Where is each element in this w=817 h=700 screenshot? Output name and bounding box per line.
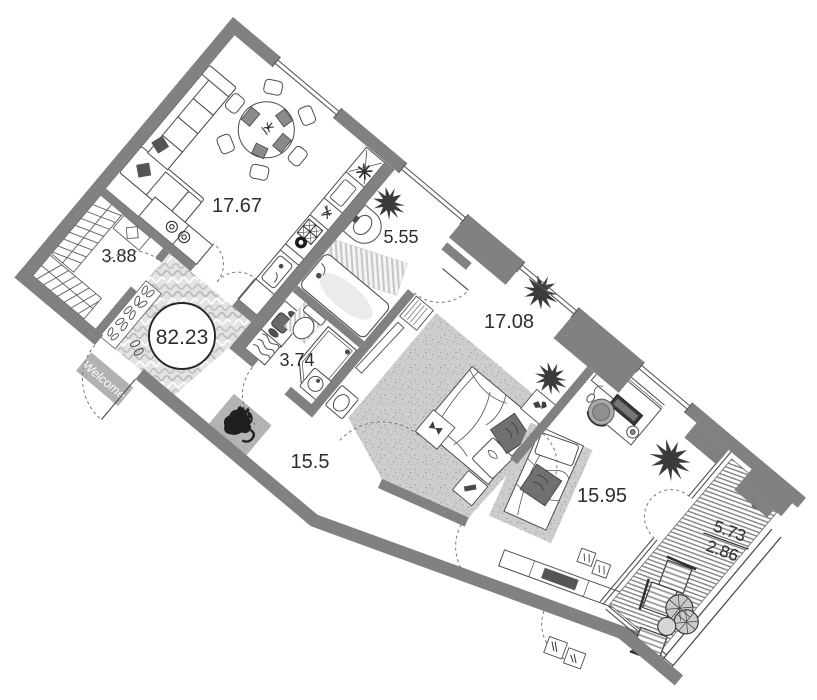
svg-text:15.95: 15.95 [577, 485, 627, 507]
svg-text:82.23: 82.23 [156, 326, 209, 349]
svg-text:3.88: 3.88 [101, 246, 136, 266]
svg-text:17.08: 17.08 [484, 311, 534, 333]
svg-text:17.67: 17.67 [212, 195, 262, 217]
svg-text:5.55: 5.55 [383, 227, 418, 247]
svg-text:15.5: 15.5 [291, 451, 330, 473]
svg-text:3.74: 3.74 [279, 350, 314, 370]
